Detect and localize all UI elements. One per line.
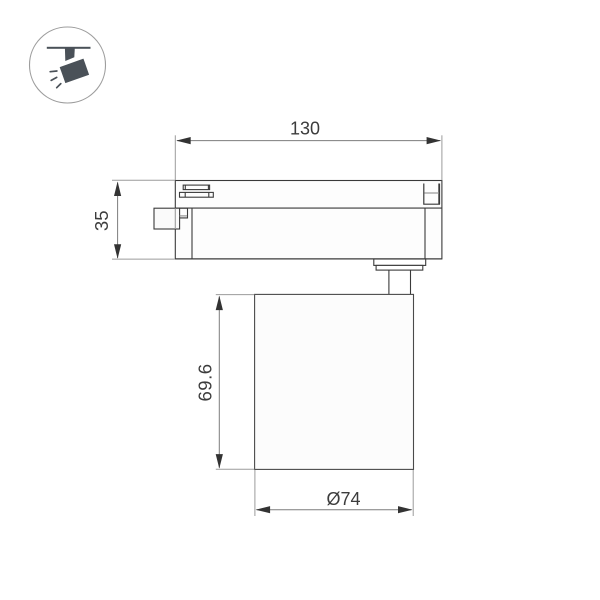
- svg-text:Ø74: Ø74: [326, 489, 360, 509]
- svg-text:130: 130: [290, 119, 320, 139]
- svg-text:35: 35: [91, 211, 112, 232]
- svg-text:69.6: 69.6: [194, 363, 215, 401]
